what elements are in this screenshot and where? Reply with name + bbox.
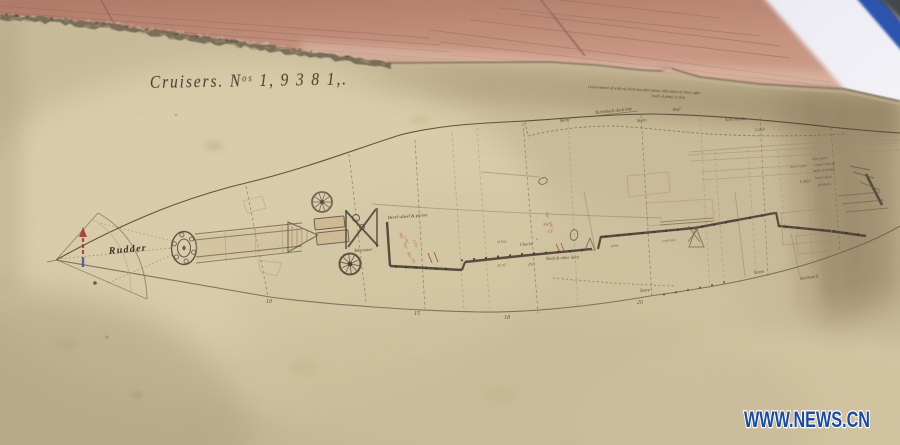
svg-text:15: 15 (414, 311, 420, 317)
svg-text:of line: of line (497, 239, 507, 244)
svg-text:Store: Store (640, 288, 651, 294)
svg-text:3'6": 3'6" (543, 222, 550, 227)
svg-text:18: 18 (504, 315, 510, 321)
svg-text:10: 10 (266, 299, 272, 305)
svg-text:Cabin: Cabin (755, 126, 766, 132)
svg-text:11'-6": 11'-6" (497, 262, 508, 268)
svg-text:plate: plate (610, 243, 619, 248)
svg-text:1'2": 1'2" (547, 229, 554, 234)
svg-text:WWW.NEWS.CN: WWW.NEWS.CN (744, 407, 870, 432)
svg-text:Rail: Rail (672, 106, 682, 112)
svg-text:x: x (535, 236, 538, 241)
svg-text:4'6": 4'6" (528, 261, 536, 266)
svg-text:20: 20 (637, 300, 643, 306)
svg-text:Cabin: Cabin (800, 178, 812, 184)
svg-text:Stern: Stern (637, 117, 648, 123)
